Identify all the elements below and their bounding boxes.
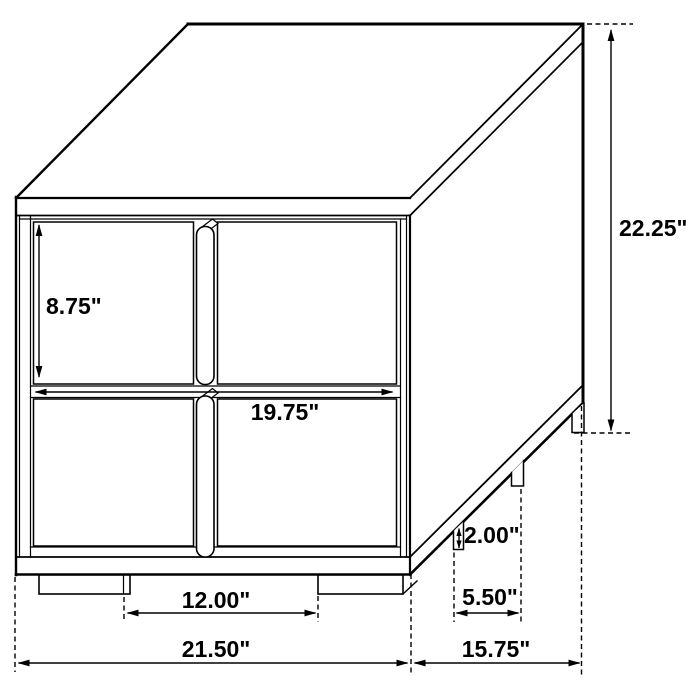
drawer-panel-top-right <box>218 222 397 384</box>
top-panel <box>16 24 583 216</box>
drawer-handles <box>197 219 219 557</box>
side-leg-middle <box>512 461 524 487</box>
top-right-underside-edge <box>410 42 583 216</box>
nightstand-dimension-drawing: 8.75" 22.25" 19.75" 2.00" 5.50" 12.00" 2… <box>0 0 700 700</box>
dim-foot-height-label: 2.00" <box>464 522 520 548</box>
drawer-panel-bottom-left <box>34 399 194 546</box>
top-right-edge <box>410 24 583 198</box>
dim-drawer-height-label: 8.75" <box>46 293 102 319</box>
dim-overall-height-label: 22.25" <box>619 215 687 241</box>
dim-drawer-width-label: 19.75" <box>251 399 319 425</box>
dimension-diagram: 8.75" 22.25" 19.75" 2.00" 5.50" 12.00" 2… <box>0 0 700 700</box>
side-plinth-bottom-edge <box>410 403 583 575</box>
dim-overall-width-label: 21.50" <box>182 636 250 662</box>
foot-front-right <box>318 575 403 594</box>
foot-front-right-side-edge <box>403 581 417 594</box>
upper-drawer-handle <box>197 227 215 385</box>
foot-front-left <box>39 575 130 594</box>
drawer-fronts <box>34 222 397 546</box>
dim-side-foot-spacing-label: 5.50" <box>462 584 518 610</box>
dim-front-foot-spacing-label: 12.00" <box>182 587 250 613</box>
top-left-edge <box>16 24 188 198</box>
dimension-labels: 8.75" 22.25" 19.75" 2.00" 5.50" 12.00" 2… <box>46 215 687 662</box>
side-panel <box>410 24 583 575</box>
lower-drawer-handle <box>197 396 215 557</box>
dim-overall-depth-label: 15.75" <box>462 636 530 662</box>
